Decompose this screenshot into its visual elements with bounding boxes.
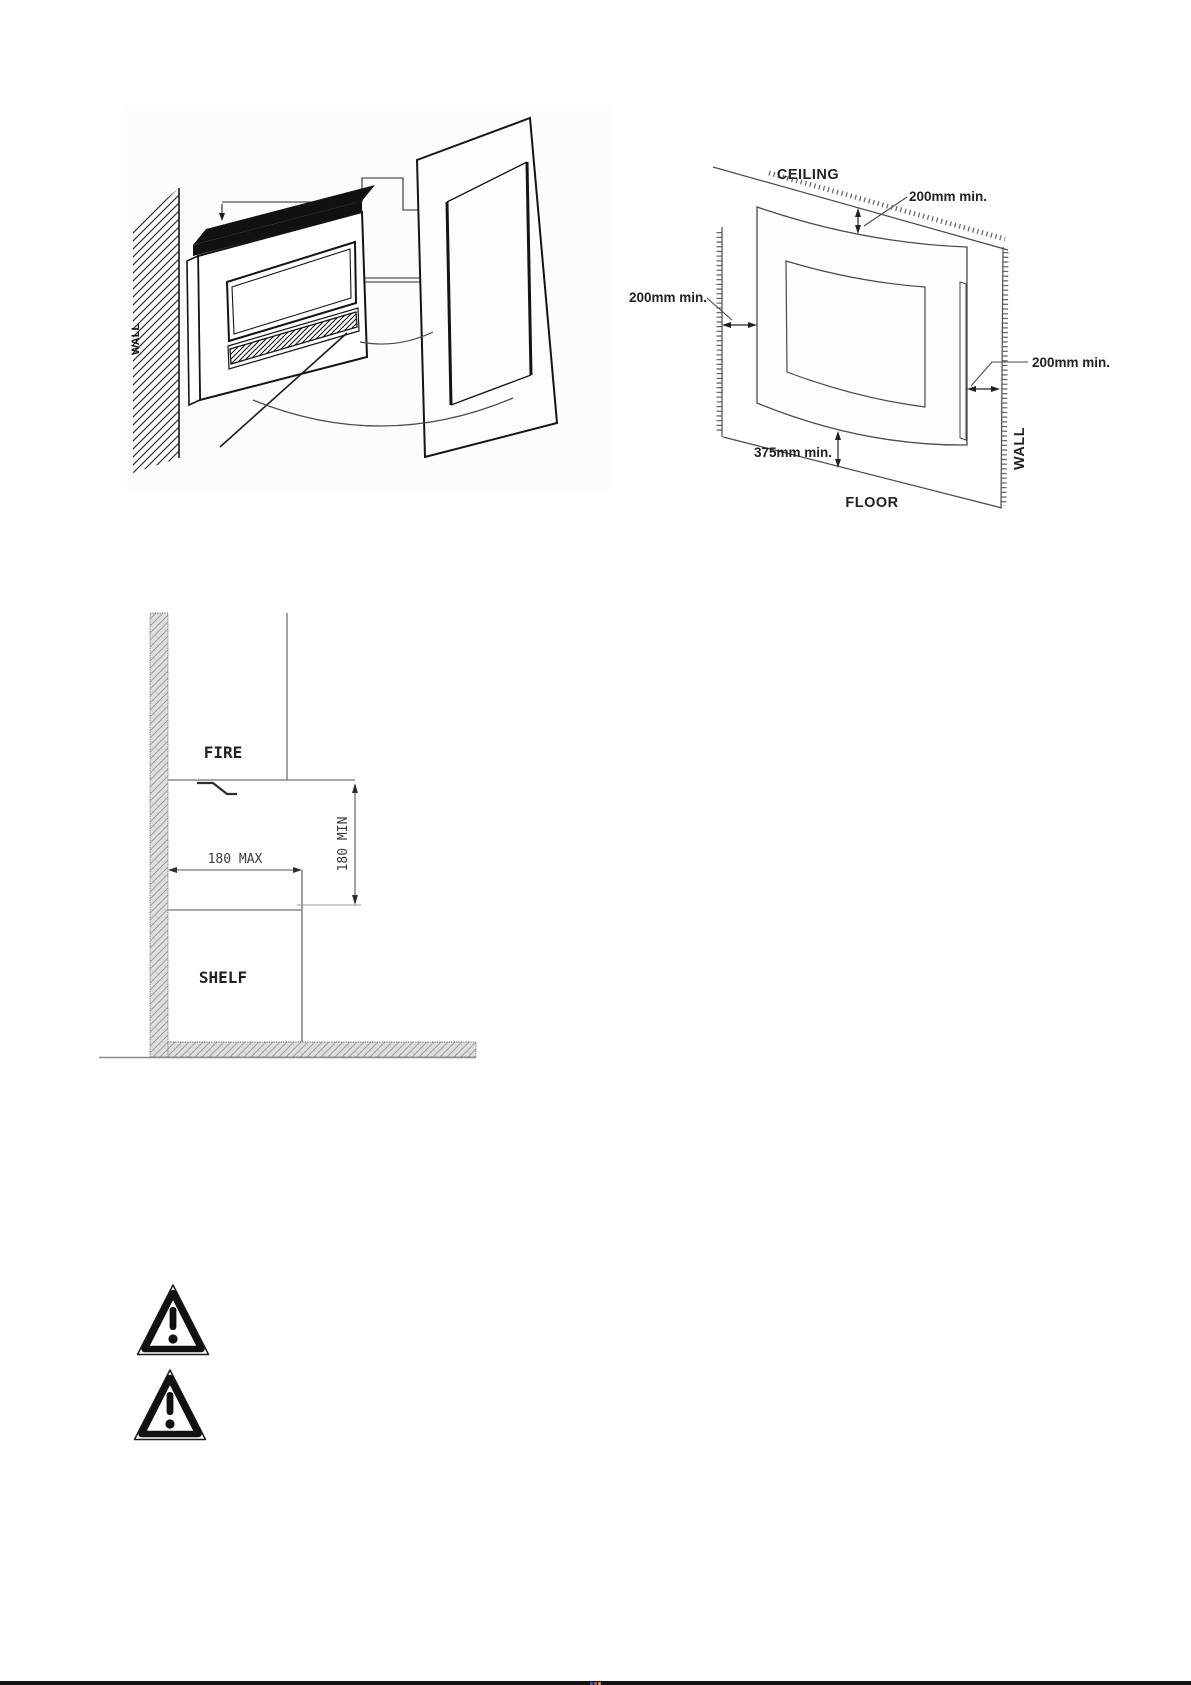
exclamation-dot — [168, 1334, 177, 1343]
top-clearance-label: 200mm min. — [909, 189, 987, 204]
shelf-label: SHELF — [199, 968, 247, 987]
figure-isometric-mounting: WALL — [125, 105, 610, 490]
exclamation-dot — [165, 1419, 174, 1428]
bottom-clearance-label: 375mm min. — [754, 445, 832, 460]
fire-outline — [168, 613, 355, 780]
left-clearance-label: 200mm min. — [629, 290, 707, 305]
warning-triangle-icon — [130, 1366, 210, 1444]
bottom-clearance-dimension — [835, 431, 841, 468]
fire-label: FIRE — [204, 743, 243, 762]
exclamation-bar — [167, 1392, 174, 1415]
right-clearance-dimension — [967, 362, 1028, 392]
exclamation-bar — [170, 1307, 177, 1330]
footer-watermark-dot — [598, 1682, 601, 1685]
footer-watermark-dot — [590, 1682, 593, 1685]
shelf-outline — [168, 870, 302, 1042]
horizontal-dimension-180-max — [168, 867, 302, 873]
wall-label-vertical: WALL — [130, 324, 142, 355]
page-bottom-bar — [0, 1681, 1191, 1685]
right-clearance-label: 200mm min. — [1032, 355, 1110, 370]
fire-unit-side — [187, 256, 200, 405]
figure-clearance-diagram: CEILING FLOOR WALL — [580, 140, 1110, 520]
ceiling-label: CEILING — [777, 167, 839, 183]
break-mark — [197, 783, 237, 794]
left-wall-line — [719, 227, 722, 437]
top-clearance-dimension — [855, 197, 907, 234]
floor-section — [168, 1042, 476, 1057]
figure-shelf-clearance: FIRE SHELF 180 MIN 180 MAX — [85, 600, 515, 1070]
fire-surround — [757, 207, 967, 445]
warning-triangle-icon — [130, 1366, 210, 1449]
isometric-mounting-drawing: WALL — [125, 105, 610, 490]
clearance-drawing: CEILING FLOOR WALL — [580, 140, 1110, 520]
warning-triangle-icon — [133, 1281, 213, 1359]
wall-section — [150, 613, 168, 1057]
warning-triangle-icon — [133, 1281, 213, 1364]
footer-watermark-dot — [594, 1682, 597, 1685]
right-wall-line — [1001, 247, 1006, 508]
vertical-dimension-label: 180 MIN — [336, 817, 351, 872]
shelf-clearance-drawing: FIRE SHELF 180 MIN 180 MAX — [85, 600, 515, 1070]
left-clearance-dimension — [707, 298, 757, 328]
vertical-dimension-180-min — [297, 783, 361, 905]
floor-label: FLOOR — [845, 495, 898, 511]
horizontal-dimension-label: 180 MAX — [208, 852, 263, 867]
wall-label-vertical: WALL — [1012, 427, 1028, 470]
manual-page: WALL — [0, 0, 1191, 1685]
